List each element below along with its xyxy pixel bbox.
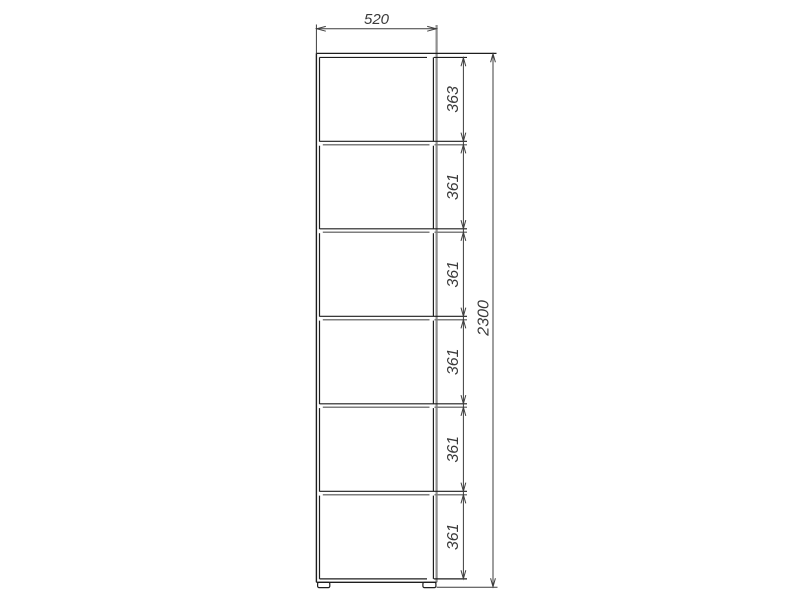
svg-text:361: 361 (445, 436, 462, 463)
svg-text:2300: 2300 (475, 300, 492, 337)
svg-text:361: 361 (445, 523, 462, 550)
svg-text:363: 363 (445, 86, 462, 113)
svg-text:520: 520 (364, 11, 390, 28)
svg-text:361: 361 (445, 261, 462, 288)
svg-text:361: 361 (445, 173, 462, 200)
svg-text:361: 361 (445, 348, 462, 375)
